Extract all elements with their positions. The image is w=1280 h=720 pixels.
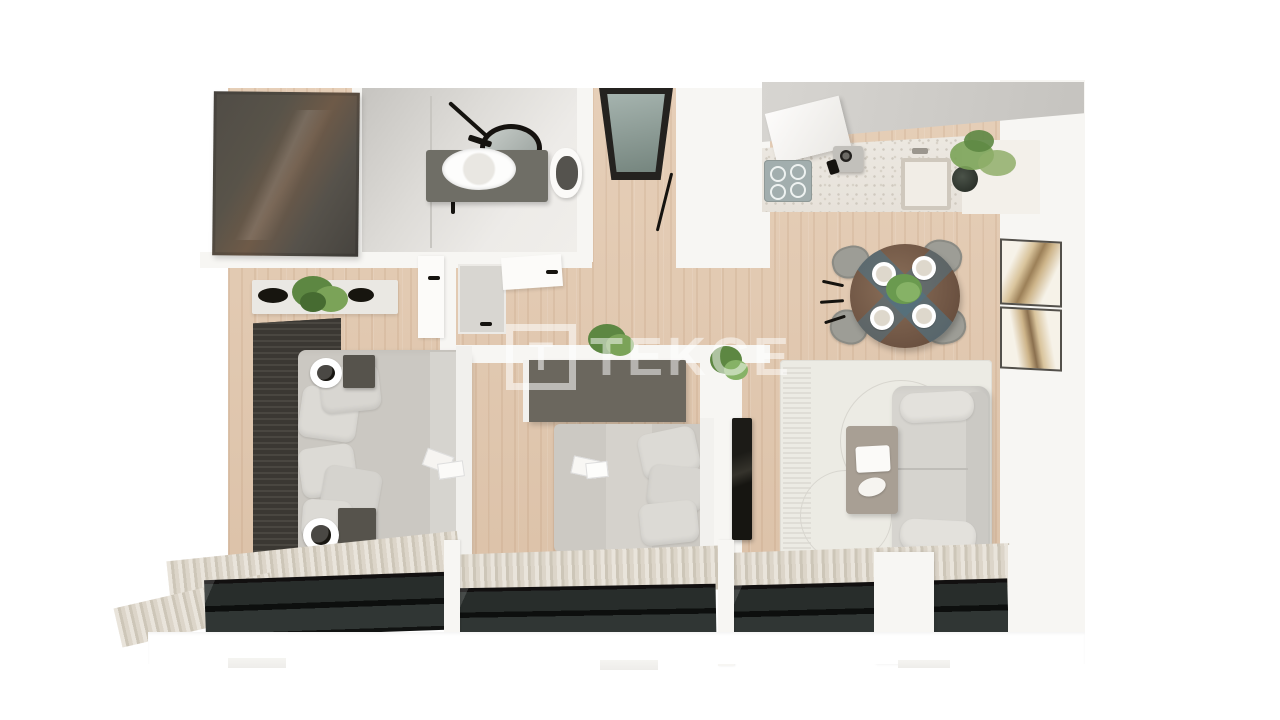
dinner-plate <box>912 256 936 280</box>
wall-art-frame <box>1000 306 1062 371</box>
table-centerpiece-plant <box>896 282 920 302</box>
bedroom2-pillow <box>638 499 700 547</box>
kitchen-faucet <box>912 148 928 154</box>
closet-wardrobe-gloss <box>226 110 346 240</box>
watermark: T TEKCE <box>506 324 793 390</box>
kitchen-plant <box>978 150 1016 176</box>
console-bowl <box>348 288 374 302</box>
toilet-lid <box>556 156 578 190</box>
door-handle <box>428 276 440 280</box>
tekce-logo-icon: T <box>506 324 576 390</box>
cooktop-burner <box>770 184 786 200</box>
coffee-table-tray <box>855 445 890 473</box>
dinner-plate <box>912 304 936 328</box>
floorplan-3d-render: T TEKCE <box>0 0 1280 720</box>
bedroom2-door <box>418 256 444 338</box>
tekce-logo-letter: T <box>529 337 553 377</box>
book-on-bed <box>585 461 609 479</box>
dinner-plate <box>870 306 894 330</box>
wall-art-frame <box>1000 238 1062 307</box>
nightstand-lamp <box>310 358 342 388</box>
balcony-glass-left <box>204 572 446 638</box>
wall-footing <box>898 660 950 668</box>
console-bowl <box>258 288 288 303</box>
nightstand <box>343 355 375 388</box>
cooktop-burner <box>770 166 786 182</box>
bedroom2-headboard <box>700 418 714 556</box>
cooktop-burner <box>790 164 806 180</box>
wall-footing <box>600 660 658 670</box>
master-bed-platform <box>456 346 472 562</box>
wall-entry-kitchen <box>676 88 770 268</box>
kitchen-sink <box>901 158 951 210</box>
nightstand <box>338 508 376 544</box>
wardrobe-handle <box>480 322 492 326</box>
console-plant <box>300 292 326 312</box>
sofa-seam <box>898 468 968 470</box>
sofa-pillow <box>899 390 974 424</box>
wall-footing <box>228 658 286 668</box>
kitchen-plant <box>964 130 994 152</box>
coffee-machine-top <box>840 150 852 162</box>
door-handle <box>546 270 558 274</box>
cooktop-burner <box>790 182 806 198</box>
watermark-brand-text: TEKCE <box>590 330 793 384</box>
wall-tv <box>732 418 752 540</box>
bathroom-sink <box>442 148 516 190</box>
